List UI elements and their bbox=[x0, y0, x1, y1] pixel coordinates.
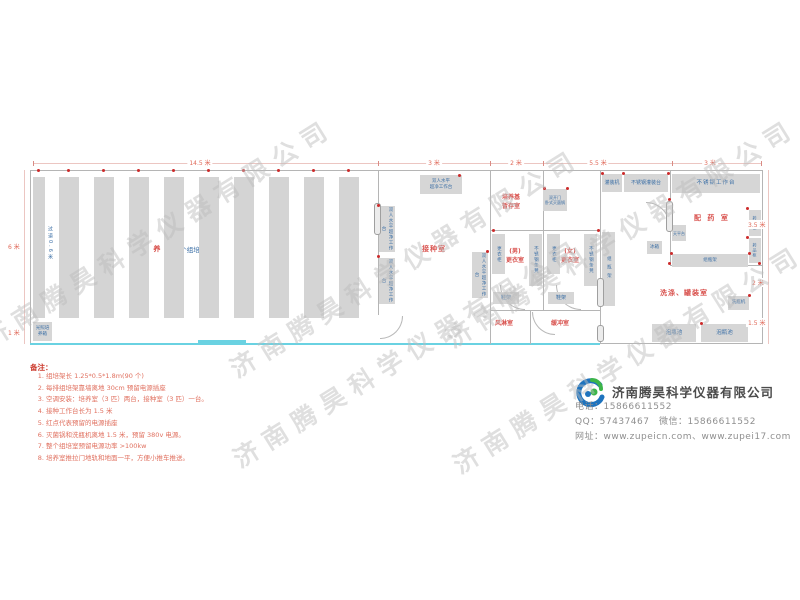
bench-women: 不锈钢条凳 bbox=[584, 234, 597, 286]
right-dimension-line bbox=[768, 170, 769, 344]
men-room-line2: 更衣室 bbox=[506, 256, 524, 265]
note-item: 每排组培架靠墙离地 30cm 预留电源插座 bbox=[46, 383, 376, 395]
shoe-rack-women: 鞋架 bbox=[548, 292, 574, 304]
power-outlet-dot bbox=[668, 262, 671, 265]
door-leaf bbox=[374, 203, 381, 235]
power-outlet-dot bbox=[242, 169, 245, 172]
bottle-washer: 洗瓶机 bbox=[728, 296, 749, 310]
power-outlet-dot bbox=[377, 204, 380, 207]
seed-room-label: 接种室 bbox=[422, 244, 446, 254]
door-leaf bbox=[666, 201, 673, 232]
power-outlet-dot bbox=[700, 322, 703, 325]
power-outlet-dot bbox=[172, 169, 175, 172]
dim-medium-width: 2 米 bbox=[508, 158, 524, 167]
medium-storage-label: 培养基 暂存室 bbox=[502, 193, 520, 211]
note-item: 组培架长 1.25*0.5*1.8m(90 个) bbox=[46, 371, 376, 383]
sliding-door-segment bbox=[198, 340, 246, 345]
power-outlet-dot bbox=[758, 262, 761, 265]
note-item: 培养室推拉门地轨和地面一平，方便小推车推送。 bbox=[46, 453, 376, 465]
sterilizer-line2: 卧式灭菌锅 bbox=[545, 200, 565, 205]
soak-pool-2: 泡瓶池 bbox=[701, 324, 748, 342]
power-outlet-dot bbox=[312, 169, 315, 172]
medium-storage-line2: 暂存室 bbox=[502, 202, 520, 211]
door-arc bbox=[380, 316, 403, 339]
work-table: 不锈钢工作台 bbox=[672, 174, 760, 193]
culture-rack-bar bbox=[129, 177, 149, 318]
culture-rack-bar bbox=[59, 177, 79, 318]
power-outlet-dot bbox=[748, 252, 751, 255]
note-item: 空调安装：培养室（3 匹）两台，接种室（3 匹）一台。 bbox=[46, 394, 376, 406]
power-outlet-dot bbox=[377, 255, 380, 258]
shoe-rack-men: 鞋架 bbox=[493, 292, 519, 304]
culture-rack-bar bbox=[269, 177, 289, 318]
note-item: 灭菌锅和洗瓶机离地 1.5 米，预留 380v 电源。 bbox=[46, 430, 376, 442]
door-leaf bbox=[597, 325, 604, 342]
notes-list: 组培架长 1.25*0.5*1.8m(90 个) 每排组培架靠墙离地 30cm … bbox=[36, 371, 376, 465]
clean-bench-top: 双人水平 超净工作台 bbox=[420, 175, 462, 194]
dim-left-upper: 6 米 bbox=[6, 242, 22, 251]
power-outlet-dot bbox=[492, 229, 495, 232]
culture-rack-bar bbox=[234, 177, 254, 318]
floorplan-page: 济南腾昊科学仪器有限公司 济南腾昊科学仪器有限公司 济南腾昊科学仪器有限公司 济… bbox=[0, 0, 800, 600]
soak-pool-1: 泡瓶池 bbox=[652, 324, 696, 342]
washing-room-label: 洗涤、罐装室 bbox=[660, 288, 708, 298]
dim-seed-width: 3 米 bbox=[426, 158, 442, 167]
power-outlet-dot bbox=[668, 198, 671, 201]
power-outlet-dot bbox=[566, 187, 569, 190]
medicine-cabinet-2: 药品柜 bbox=[749, 238, 761, 263]
air-shower-label: 风淋室 bbox=[495, 318, 513, 327]
power-outlet-dot bbox=[601, 172, 604, 175]
power-outlet-dot bbox=[458, 174, 461, 177]
door-leaf bbox=[597, 278, 604, 307]
power-outlet-dot bbox=[667, 172, 670, 175]
culture-rack-bar bbox=[94, 177, 114, 318]
medium-storage-line1: 培养基 bbox=[502, 193, 520, 202]
women-room-line2: 更衣室 bbox=[561, 256, 579, 265]
company-phone: 电话：15866611552 bbox=[575, 399, 672, 412]
sterilizer: 双开门 卧式灭菌锅 bbox=[543, 189, 567, 211]
culture-rack-bar bbox=[33, 177, 45, 318]
bench-men: 不锈钢条凳 bbox=[529, 234, 542, 286]
dim-wash-width: 5.5 米 bbox=[587, 158, 608, 167]
note-item: 整个组培室预留电源功率 >100kw bbox=[46, 441, 376, 453]
floor-plan: 14.5 米 3 米 2 米 5.5 米 3 米 6 米 1 米 3.5 米 2… bbox=[0, 0, 800, 600]
culture-rack-bar bbox=[164, 177, 184, 318]
dim-right-upper: 3.5 米 bbox=[746, 220, 767, 229]
company-qq-wechat: QQ：57437467 微信：15866611552 bbox=[575, 414, 756, 427]
dispense-room-label: 配 药 室 bbox=[694, 213, 730, 223]
power-outlet-dot bbox=[746, 236, 749, 239]
clean-bench-left-2: 双人水平超净工作台 bbox=[379, 258, 395, 304]
power-outlet-dot bbox=[748, 294, 751, 297]
power-outlet-dot bbox=[347, 169, 350, 172]
locker-men: 更衣柜 bbox=[492, 234, 505, 274]
fridge: 冰箱 bbox=[647, 241, 662, 254]
power-outlet-dot bbox=[746, 207, 749, 210]
left-dimension-line bbox=[24, 170, 25, 344]
balance-table: 天平台 bbox=[672, 225, 686, 241]
clean-bench-right: 双人水平超净工作台 bbox=[472, 252, 488, 298]
light-incubator: 光照培养箱 bbox=[33, 322, 52, 341]
buffer-room-label: 缓冲室 bbox=[551, 318, 569, 327]
culture-rack-bar bbox=[304, 177, 324, 318]
men-room-line1: (男) bbox=[506, 247, 524, 256]
power-outlet-dot bbox=[102, 169, 105, 172]
company-website: 网址：www.zupeicn.com、www.zupei17.com bbox=[575, 429, 791, 442]
power-outlet-dot bbox=[207, 169, 210, 172]
women-room-line1: (女) bbox=[561, 247, 579, 256]
power-outlet-dot bbox=[137, 169, 140, 172]
dim-left-lower: 1 米 bbox=[6, 328, 22, 337]
power-outlet-dot bbox=[277, 169, 280, 172]
power-outlet-dot bbox=[622, 172, 625, 175]
locker-women: 更衣柜 bbox=[547, 234, 560, 274]
clean-bench-line2: 超净工作台 bbox=[430, 185, 453, 191]
clean-bench-left-1: 双人水平超净工作台 bbox=[379, 206, 395, 252]
culture-rack-bar bbox=[339, 177, 359, 318]
dim-dispense-width: 3 米 bbox=[702, 158, 718, 167]
power-outlet-dot bbox=[37, 169, 40, 172]
filling-table: 不锈钢灌装台 bbox=[624, 174, 668, 192]
power-outlet-dot bbox=[670, 252, 673, 255]
power-outlet-dot bbox=[543, 187, 546, 190]
filling-machine: 灌装机 bbox=[602, 174, 622, 192]
power-outlet-dot bbox=[486, 250, 489, 253]
dim-right-mid: 2 米 bbox=[750, 278, 766, 287]
bottle-rack-horizontal: 组瓶架 bbox=[672, 254, 748, 267]
culture-rack-bar bbox=[199, 177, 219, 318]
power-outlet-dot bbox=[67, 169, 70, 172]
note-item: 接种工作台长为 1.5 米 bbox=[46, 406, 376, 418]
note-item: 红点代表预留的电源插座 bbox=[46, 418, 376, 430]
dim-culture-width: 14.5 米 bbox=[187, 158, 212, 167]
top-dimension-line bbox=[33, 163, 762, 164]
sliding-wall-cyan bbox=[30, 343, 600, 345]
power-outlet-dot bbox=[597, 229, 600, 232]
aisle-label: 过道0.6米 bbox=[47, 226, 54, 261]
dim-right-lower: 1.5 米 bbox=[746, 318, 767, 327]
